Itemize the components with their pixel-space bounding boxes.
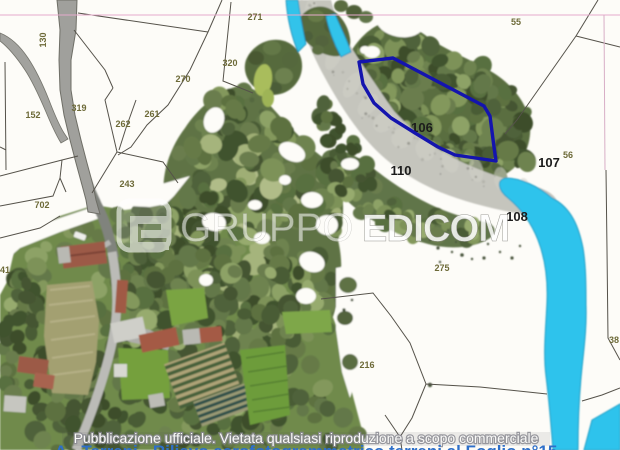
svg-text:261: 261: [144, 109, 159, 119]
svg-text:38: 38: [609, 335, 619, 345]
svg-text:55: 55: [511, 17, 521, 27]
svg-text:A - Terreni - Rilievo aerofoto: A - Terreni - Rilievo aerofotogrammetric…: [55, 442, 558, 450]
svg-text:EDICOM: EDICOM: [362, 208, 509, 250]
svg-text:262: 262: [115, 119, 130, 129]
svg-text:320: 320: [222, 58, 237, 68]
svg-text:152: 152: [25, 110, 40, 120]
svg-text:271: 271: [247, 12, 262, 22]
svg-text:270: 270: [175, 74, 190, 84]
svg-text:275: 275: [434, 263, 449, 273]
svg-text:319: 319: [71, 103, 86, 113]
svg-text:216: 216: [359, 360, 374, 370]
svg-text:110: 110: [391, 163, 412, 178]
svg-text:56: 56: [563, 150, 573, 160]
svg-text:GRUPPO: GRUPPO: [180, 206, 353, 250]
svg-text:41: 41: [0, 265, 10, 275]
svg-text:107: 107: [538, 155, 560, 170]
svg-text:702: 702: [34, 200, 49, 210]
svg-text:243: 243: [119, 179, 134, 189]
svg-text:130: 130: [38, 32, 48, 47]
svg-text:108: 108: [506, 209, 528, 224]
